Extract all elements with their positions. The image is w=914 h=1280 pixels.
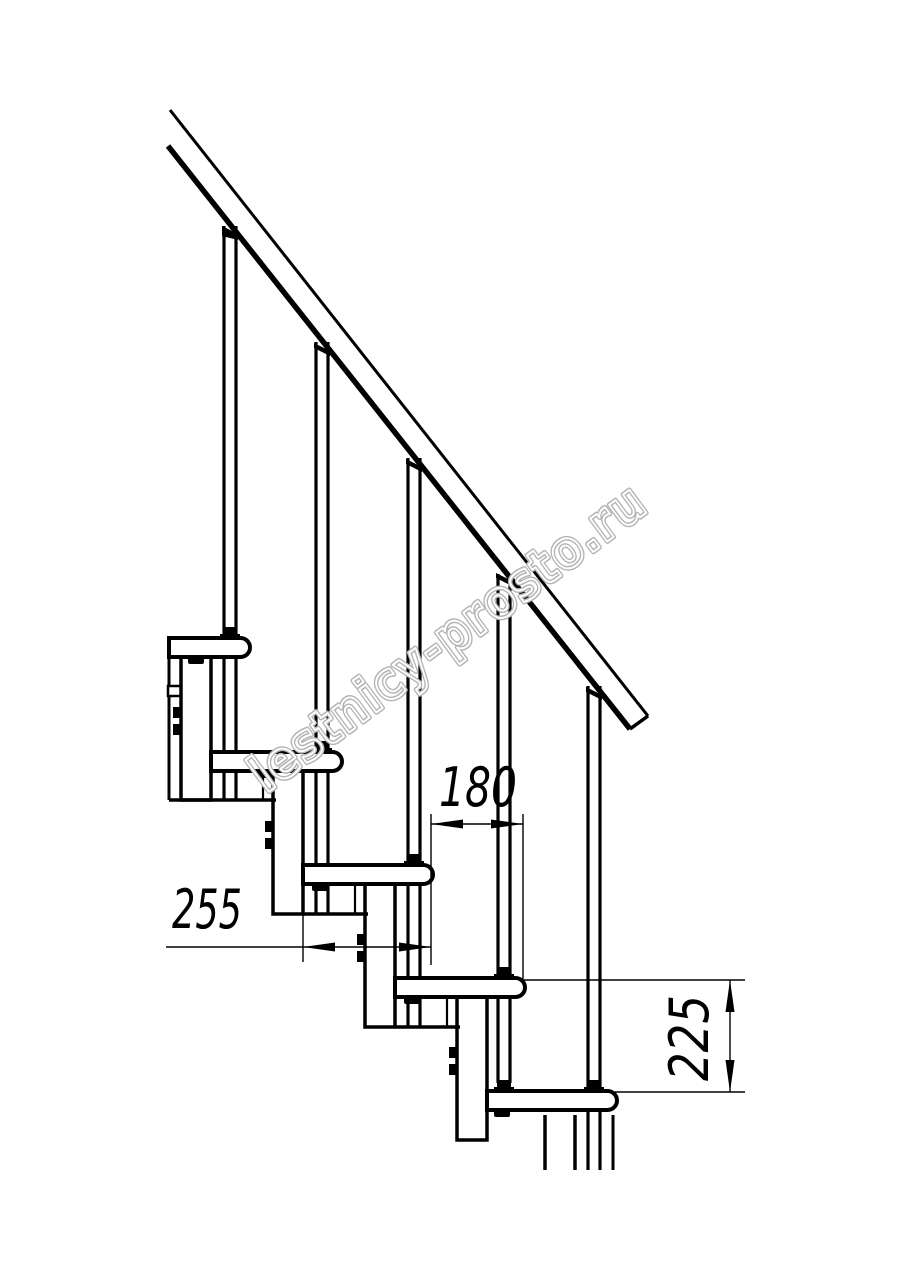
watermark: lestnicy-prosto.ru lestnicy-prosto.ru — [238, 472, 658, 805]
tread-4 — [395, 978, 525, 997]
dim-arrow — [491, 820, 523, 829]
dim-run-label: 180 — [439, 756, 517, 819]
module-column-1 — [181, 657, 211, 800]
dim-tread-depth-label: 255 — [172, 878, 242, 941]
tread-3 — [303, 865, 433, 884]
module-column-3 — [365, 884, 395, 1027]
baluster-4-foot — [494, 1080, 514, 1091]
staircase-drawing: 180 255 225 lestnicy-prosto.ru lestnicy-… — [0, 0, 914, 1280]
handrail-end-cut — [630, 716, 648, 729]
baluster-3 — [408, 458, 420, 1027]
dim-arrow — [726, 980, 735, 1012]
watermark-inner: lestnicy-prosto.ru — [238, 472, 658, 805]
dim-arrow — [399, 943, 431, 952]
tread-5 — [487, 1091, 617, 1110]
staircase-drawing-page: 180 255 225 lestnicy-prosto.ru lestnicy-… — [0, 0, 914, 1280]
dim-arrow — [726, 1060, 735, 1092]
baluster-1 — [224, 226, 236, 800]
dimension-rise: 225 — [524, 980, 745, 1092]
dim-arrow — [431, 820, 463, 829]
baluster-2 — [316, 342, 328, 914]
baluster-4 — [498, 574, 510, 1083]
module-column-4 — [457, 997, 487, 1140]
tread-1 — [169, 638, 250, 657]
dim-arrow — [303, 943, 335, 952]
dim-rise-label: 225 — [658, 995, 721, 1081]
bottom-cut-lines — [545, 1115, 613, 1170]
